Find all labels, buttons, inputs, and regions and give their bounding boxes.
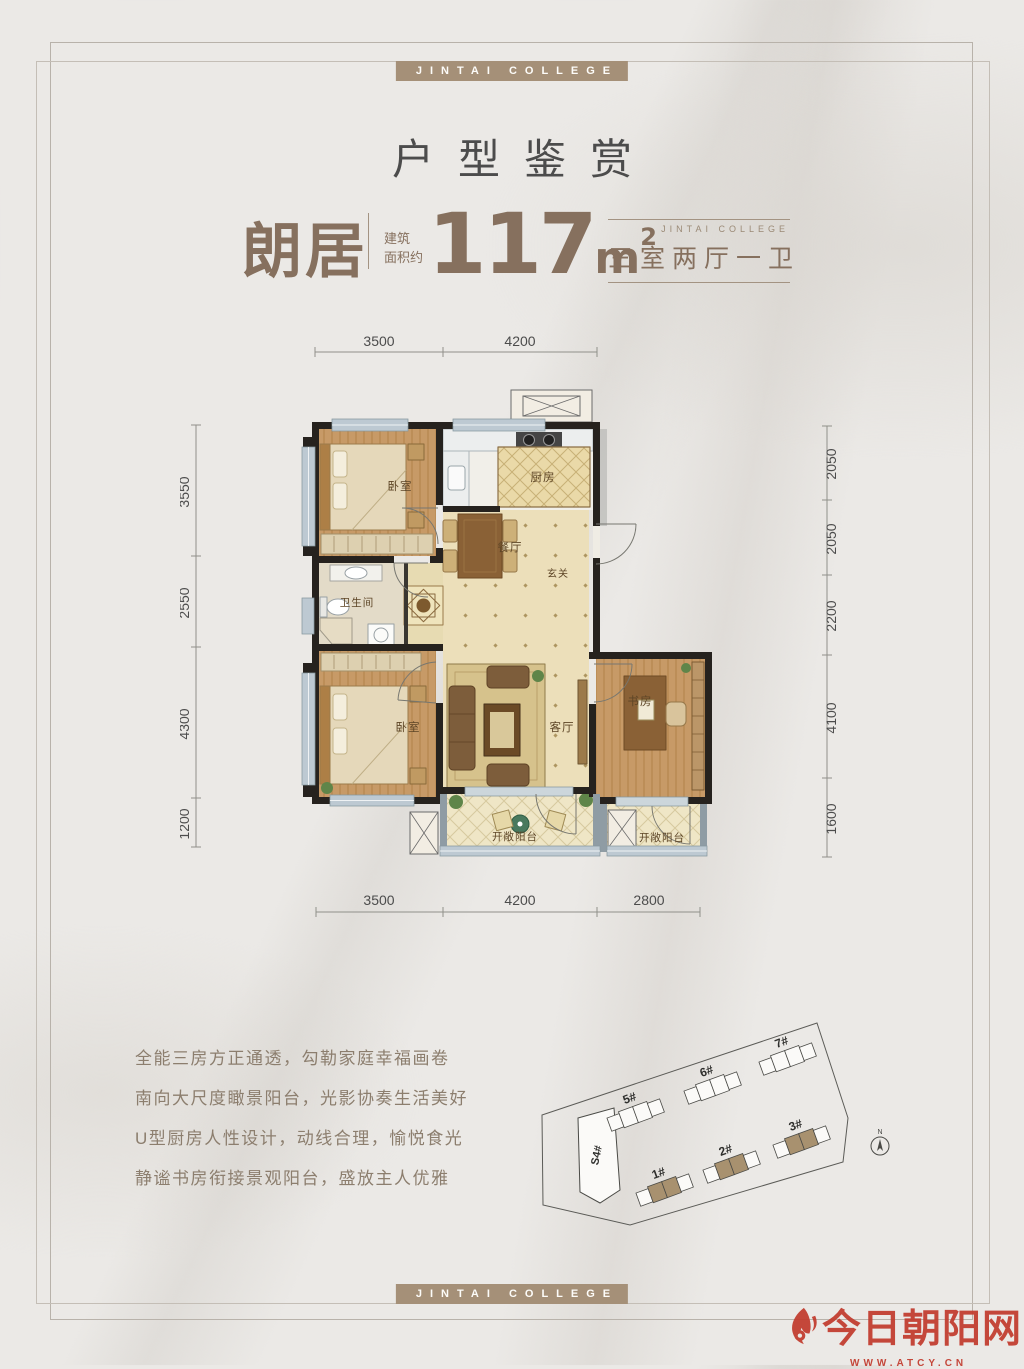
dim-right-0: 2050 bbox=[823, 448, 839, 479]
dim-bottom-2: 2800 bbox=[633, 892, 664, 908]
label-dining: 餐厅 bbox=[498, 540, 523, 554]
label-bedroom1: 卧室 bbox=[388, 479, 413, 493]
dim-left-2: 4300 bbox=[180, 708, 192, 739]
label-balcony2: 开敞阳台 bbox=[639, 831, 685, 844]
dim-right-4: 1600 bbox=[823, 803, 839, 834]
compass-label: N bbox=[877, 1129, 882, 1136]
selling-point-3: U型厨房人性设计，动线合理，愉悦食光 bbox=[135, 1130, 468, 1148]
building-1: 1# bbox=[630, 1157, 694, 1207]
selling-point-4: 静谧书房衔接景观阳台，盛放主人优雅 bbox=[135, 1170, 468, 1188]
building-3: 3# bbox=[767, 1109, 831, 1159]
label-bathroom: 卫生间 bbox=[340, 596, 375, 609]
dim-top-1: 4200 bbox=[504, 333, 535, 349]
building-5-label: 5# bbox=[621, 1089, 639, 1107]
dim-bottom-1: 4200 bbox=[504, 892, 535, 908]
dim-left-3: 1200 bbox=[180, 808, 192, 839]
building-3-label: 3# bbox=[787, 1116, 805, 1134]
building-1-label: 1# bbox=[650, 1164, 668, 1182]
selling-point-2: 南向大尺度瞰景阳台，光影协奏生活美好 bbox=[135, 1090, 468, 1108]
dim-top-0: 3500 bbox=[363, 333, 394, 349]
dim-right-1: 2050 bbox=[823, 523, 839, 554]
unit-name: 朗居 bbox=[242, 203, 368, 290]
page-title: 户型鉴赏 bbox=[0, 126, 1024, 187]
layout-block: JINTAI COLLEGE 三室两厅一卫 bbox=[608, 219, 790, 283]
selling-points: 全能三房方正通透，勾勒家庭幸福画卷 南向大尺度瞰景阳台，光影协奏生活美好 U型厨… bbox=[135, 1050, 468, 1210]
logo-name: 今日朝阳网 bbox=[822, 1298, 1022, 1354]
building-6-label: 6# bbox=[698, 1062, 716, 1080]
site-plan: S4# 5# 6# 7# 1# 2# 3# N bbox=[530, 1015, 910, 1250]
dim-right-2: 2200 bbox=[823, 600, 839, 631]
label-study: 书房 bbox=[628, 695, 653, 708]
site-watermark-logo: 今日朝阳网 WWW.ATCY.CN bbox=[788, 1296, 1022, 1369]
area-prefix-line1: 建筑 bbox=[384, 229, 423, 248]
building-7: 7# bbox=[753, 1026, 817, 1076]
area-prefix-line2: 面积约 bbox=[384, 248, 423, 267]
area-value: 117 bbox=[428, 195, 594, 293]
label-entry: 玄关 bbox=[547, 567, 569, 580]
floorplan: 卧室 厨房 餐厅 玄关 卫生间 卧室 客厅 书房 开敞阳台 开敞阳台 3500 … bbox=[180, 330, 845, 940]
flame-icon bbox=[788, 1296, 822, 1356]
building-2-label: 2# bbox=[717, 1141, 735, 1159]
building-6: 6# bbox=[678, 1055, 742, 1105]
building-5: 5# bbox=[601, 1082, 665, 1132]
top-brand-banner: JINTAI COLLEGE bbox=[396, 61, 628, 81]
building-2: 2# bbox=[697, 1134, 761, 1184]
unit-divider bbox=[368, 213, 369, 269]
dim-bottom-0: 3500 bbox=[363, 892, 394, 908]
bottom-brand-banner: JINTAI COLLEGE bbox=[396, 1284, 628, 1304]
brand-small: JINTAI COLLEGE bbox=[608, 223, 790, 239]
label-balcony1: 开敞阳台 bbox=[492, 830, 538, 843]
label-bedroom2: 卧室 bbox=[396, 720, 421, 734]
dim-right-3: 4100 bbox=[823, 702, 839, 733]
label-living: 客厅 bbox=[550, 720, 575, 734]
area-prefix: 建筑 面积约 bbox=[384, 229, 423, 267]
label-kitchen: 厨房 bbox=[531, 471, 556, 484]
building-7-label: 7# bbox=[773, 1033, 791, 1051]
logo-url: WWW.ATCY.CN bbox=[850, 1358, 1022, 1369]
unit-layout: 三室两厅一卫 bbox=[608, 239, 790, 275]
dim-left-1: 2550 bbox=[180, 587, 192, 618]
selling-point-1: 全能三房方正通透，勾勒家庭幸福画卷 bbox=[135, 1050, 468, 1068]
compass-icon: N bbox=[871, 1129, 889, 1155]
dim-left-0: 3550 bbox=[180, 476, 192, 507]
